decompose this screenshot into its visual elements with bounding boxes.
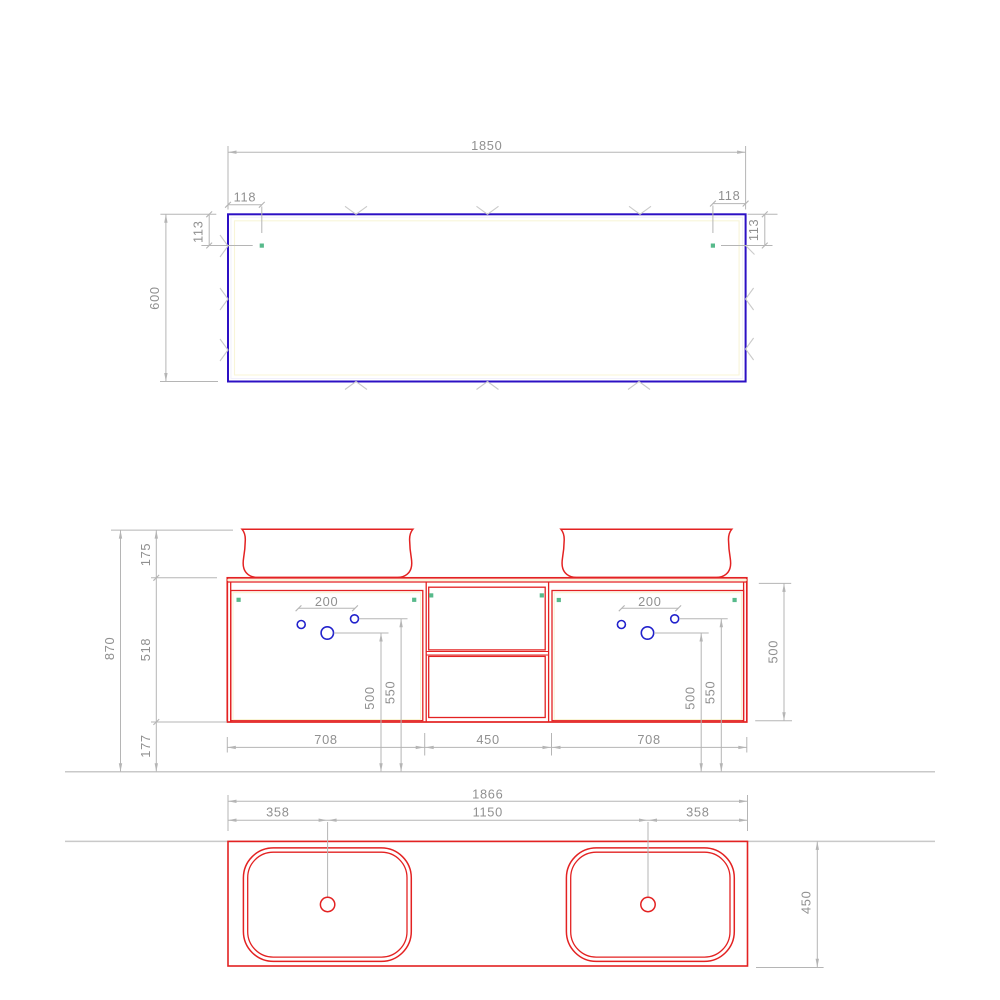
svg-text:500: 500 [765,640,780,663]
svg-text:177: 177 [138,734,153,757]
svg-text:708: 708 [314,732,337,747]
svg-text:358: 358 [266,805,289,820]
svg-text:358: 358 [686,805,709,820]
svg-text:500: 500 [682,686,697,709]
svg-text:118: 118 [234,189,257,204]
svg-text:1850: 1850 [471,138,502,153]
svg-text:113: 113 [191,220,206,243]
svg-text:1866: 1866 [472,786,503,801]
svg-text:113: 113 [746,219,761,242]
svg-text:600: 600 [147,286,162,309]
svg-text:175: 175 [138,543,153,566]
svg-text:550: 550 [382,681,397,704]
svg-text:200: 200 [638,594,661,609]
svg-text:450: 450 [476,732,499,747]
svg-text:450: 450 [798,891,813,914]
svg-text:550: 550 [703,681,718,704]
svg-text:870: 870 [102,637,117,660]
svg-text:518: 518 [138,638,153,661]
svg-text:500: 500 [362,686,377,709]
svg-text:1150: 1150 [473,805,503,820]
svg-text:118: 118 [718,188,741,203]
svg-text:200: 200 [315,594,338,609]
svg-text:708: 708 [637,732,660,747]
